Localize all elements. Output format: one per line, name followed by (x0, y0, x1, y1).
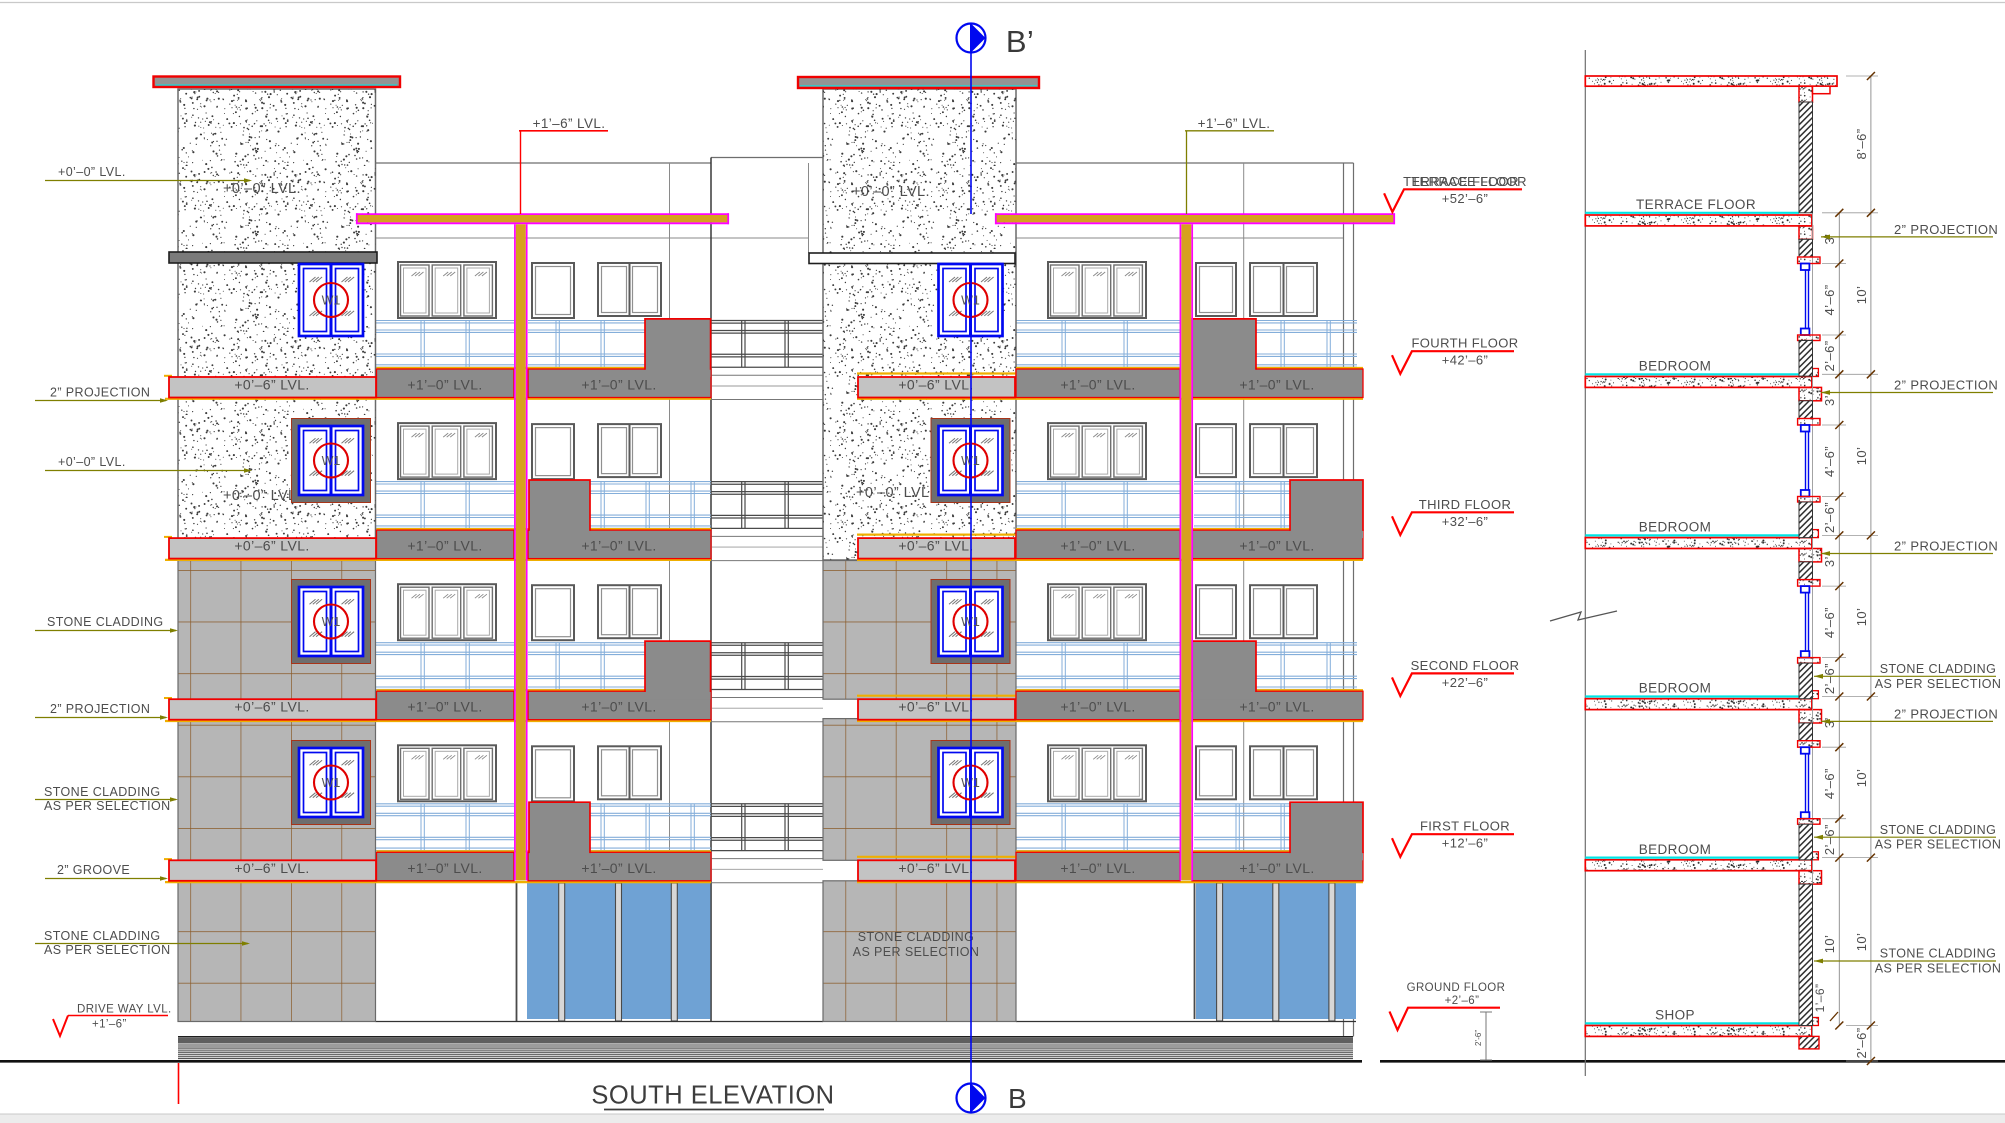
svg-text:2” PROJECTION: 2” PROJECTION (1894, 378, 1998, 393)
svg-text:+1’–0” LVL.: +1’–0” LVL. (1239, 699, 1314, 715)
svg-text:STONE CLADDING: STONE CLADDING (1880, 947, 1997, 961)
svg-text:+0’–0” LVL.: +0’–0” LVL. (223, 181, 301, 197)
svg-text:SHOP: SHOP (1655, 1008, 1695, 1023)
svg-text:BEDROOM: BEDROOM (1639, 359, 1712, 374)
svg-text:AS PER SELECTION: AS PER SELECTION (1875, 677, 2002, 691)
svg-text:STONE CLADDING: STONE CLADDING (47, 615, 164, 629)
svg-text:+1’–0” LVL.: +1’–0” LVL. (1060, 538, 1135, 554)
svg-text:+1’–0” LVL.: +1’–0” LVL. (407, 860, 482, 876)
svg-text:BEDROOM: BEDROOM (1639, 520, 1712, 535)
svg-text:+12’–6”: +12’–6” (1442, 836, 1489, 851)
svg-text:+1’–6”: +1’–6” (92, 1019, 127, 1031)
svg-text:TERRACE FLOOR: TERRACE FLOOR (1411, 174, 1527, 189)
svg-text:GROUND FLOOR: GROUND FLOOR (1407, 982, 1506, 994)
svg-text:+0’–0” LVL.: +0’–0” LVL. (58, 165, 126, 179)
svg-text:TERRACE FLOOR: TERRACE FLOOR (1636, 197, 1756, 212)
svg-text:+0’–6” LVL.: +0’–6” LVL. (234, 377, 309, 393)
svg-text:FOURTH FLOOR: FOURTH FLOOR (1411, 336, 1518, 351)
svg-text:STONE CLADDING: STONE CLADDING (1880, 823, 1997, 837)
svg-text:AS PER SELECTION: AS PER SELECTION (853, 945, 980, 959)
svg-text:+1’–0” LVL.: +1’–0” LVL. (581, 860, 656, 876)
svg-text:AS PER SELECTION: AS PER SELECTION (1875, 838, 2002, 852)
svg-text:2’–6”: 2’–6” (1822, 663, 1837, 694)
svg-text:3’: 3’ (1822, 395, 1837, 406)
svg-text:10’: 10’ (1854, 286, 1869, 305)
svg-text:+1’–0” LVL.: +1’–0” LVL. (1239, 860, 1314, 876)
svg-text:+1’–0” LVL.: +1’–0” LVL. (407, 699, 482, 715)
svg-text:+2’–6”: +2’–6” (1445, 995, 1480, 1007)
svg-text:2’–6”: 2’–6” (1822, 341, 1837, 372)
svg-text:AS PER SELECTION: AS PER SELECTION (44, 799, 171, 813)
svg-text:2’–6”: 2’–6” (1854, 1028, 1869, 1059)
svg-text:STONE CLADDING: STONE CLADDING (858, 930, 975, 944)
svg-text:8’–6”: 8’–6” (1854, 129, 1869, 160)
svg-text:+1’–0” LVL.: +1’–0” LVL. (1060, 860, 1135, 876)
svg-text:+1’–0” LVL.: +1’–0” LVL. (1060, 699, 1135, 715)
svg-text:2” PROJECTION: 2” PROJECTION (50, 386, 150, 400)
svg-text:W1: W1 (322, 294, 341, 308)
svg-text:+32’–6”: +32’–6” (1442, 514, 1489, 529)
svg-text:2” PROJECTION: 2” PROJECTION (1894, 706, 1998, 721)
svg-text:+0’–6” LVL.: +0’–6” LVL. (234, 860, 309, 876)
svg-text:1’–6”: 1’–6” (1813, 984, 1827, 1013)
svg-text:+0’–6” LVL.: +0’–6” LVL. (898, 699, 973, 715)
svg-text:+0’–0” LVL.: +0’–0” LVL. (58, 455, 126, 469)
svg-text:10’: 10’ (1854, 608, 1869, 627)
svg-text:10’: 10’ (1822, 935, 1837, 954)
svg-text:+1’–0” LVL.: +1’–0” LVL. (1239, 377, 1314, 393)
svg-text:BEDROOM: BEDROOM (1639, 681, 1712, 696)
svg-text:FIRST FLOOR: FIRST FLOOR (1420, 819, 1510, 834)
svg-text:W1: W1 (322, 615, 341, 629)
svg-text:10’: 10’ (1854, 769, 1869, 788)
svg-text:W1: W1 (322, 776, 341, 790)
svg-text:10’: 10’ (1854, 447, 1869, 466)
svg-text:4’–6”: 4’–6” (1822, 768, 1837, 799)
svg-text:2’–6”: 2’–6” (1822, 502, 1837, 533)
svg-text:BEDROOM: BEDROOM (1639, 842, 1712, 857)
svg-text:+52’–6”: +52’–6” (1442, 191, 1489, 206)
svg-text:STONE CLADDING: STONE CLADDING (44, 929, 161, 943)
svg-text:10’: 10’ (1854, 933, 1869, 952)
svg-text:2” GROOVE: 2” GROOVE (57, 863, 130, 877)
svg-text:THIRD FLOOR: THIRD FLOOR (1419, 497, 1512, 512)
svg-text:+0’–6” LVL.: +0’–6” LVL. (898, 860, 973, 876)
svg-text:+1’–0” LVL.: +1’–0” LVL. (581, 377, 656, 393)
svg-text:+1’–0” LVL.: +1’–0” LVL. (581, 538, 656, 554)
svg-text:+1’–0” LVL.: +1’–0” LVL. (407, 538, 482, 554)
svg-text:4’–6”: 4’–6” (1822, 446, 1837, 477)
svg-text:+0’–0” LVL.: +0’–0” LVL. (852, 184, 930, 200)
svg-text:4’–6”: 4’–6” (1822, 285, 1837, 316)
svg-text:+1’–0” LVL.: +1’–0” LVL. (581, 699, 656, 715)
svg-text:+42’–6”: +42’–6” (1442, 353, 1489, 368)
svg-text:4’–6”: 4’–6” (1822, 607, 1837, 638)
svg-text:2” PROJECTION: 2” PROJECTION (1894, 222, 1998, 237)
svg-text:+1’–6” LVL.: +1’–6” LVL. (533, 116, 606, 131)
svg-text:3’: 3’ (1822, 556, 1837, 567)
svg-text:SOUTH ELEVATION: SOUTH ELEVATION (591, 1082, 834, 1110)
svg-text:+0’–6” LVL.: +0’–6” LVL. (234, 699, 309, 715)
svg-text:+0’–0” LVL.: +0’–0” LVL. (223, 488, 301, 504)
svg-text:+0’–6” LVL.: +0’–6” LVL. (898, 377, 973, 393)
svg-text:STONE CLADDING: STONE CLADDING (44, 785, 161, 799)
svg-text:DRIVE WAY LVL.: DRIVE WAY LVL. (77, 1004, 172, 1016)
svg-text:2’–6”: 2’–6” (1822, 824, 1837, 855)
svg-text:+0’–0” LVL.: +0’–0” LVL. (856, 485, 934, 501)
svg-text:+0’–6” LVL.: +0’–6” LVL. (898, 538, 973, 554)
svg-text:B: B (1008, 1083, 1027, 1114)
svg-text:AS PER SELECTION: AS PER SELECTION (1875, 962, 2002, 976)
svg-text:+1’–0” LVL.: +1’–0” LVL. (1239, 538, 1314, 554)
svg-text:W1: W1 (322, 454, 341, 468)
svg-text:+1’–6” LVL.: +1’–6” LVL. (1198, 116, 1271, 131)
svg-text:2’-6”: 2’-6” (1474, 1030, 1483, 1046)
svg-text:+22’–6”: +22’–6” (1442, 675, 1489, 690)
svg-text:STONE CLADDING: STONE CLADDING (1880, 662, 1997, 676)
svg-text:+1’–0” LVL.: +1’–0” LVL. (407, 377, 482, 393)
svg-text:AS PER SELECTION: AS PER SELECTION (44, 943, 171, 957)
svg-text:B’: B’ (1006, 24, 1034, 59)
svg-text:+0’–6” LVL.: +0’–6” LVL. (234, 538, 309, 554)
svg-text:+1’–0” LVL.: +1’–0” LVL. (1060, 377, 1135, 393)
svg-text:2” PROJECTION: 2” PROJECTION (1894, 539, 1998, 554)
svg-text:2” PROJECTION: 2” PROJECTION (50, 702, 150, 716)
svg-text:SECOND FLOOR: SECOND FLOOR (1411, 658, 1520, 673)
